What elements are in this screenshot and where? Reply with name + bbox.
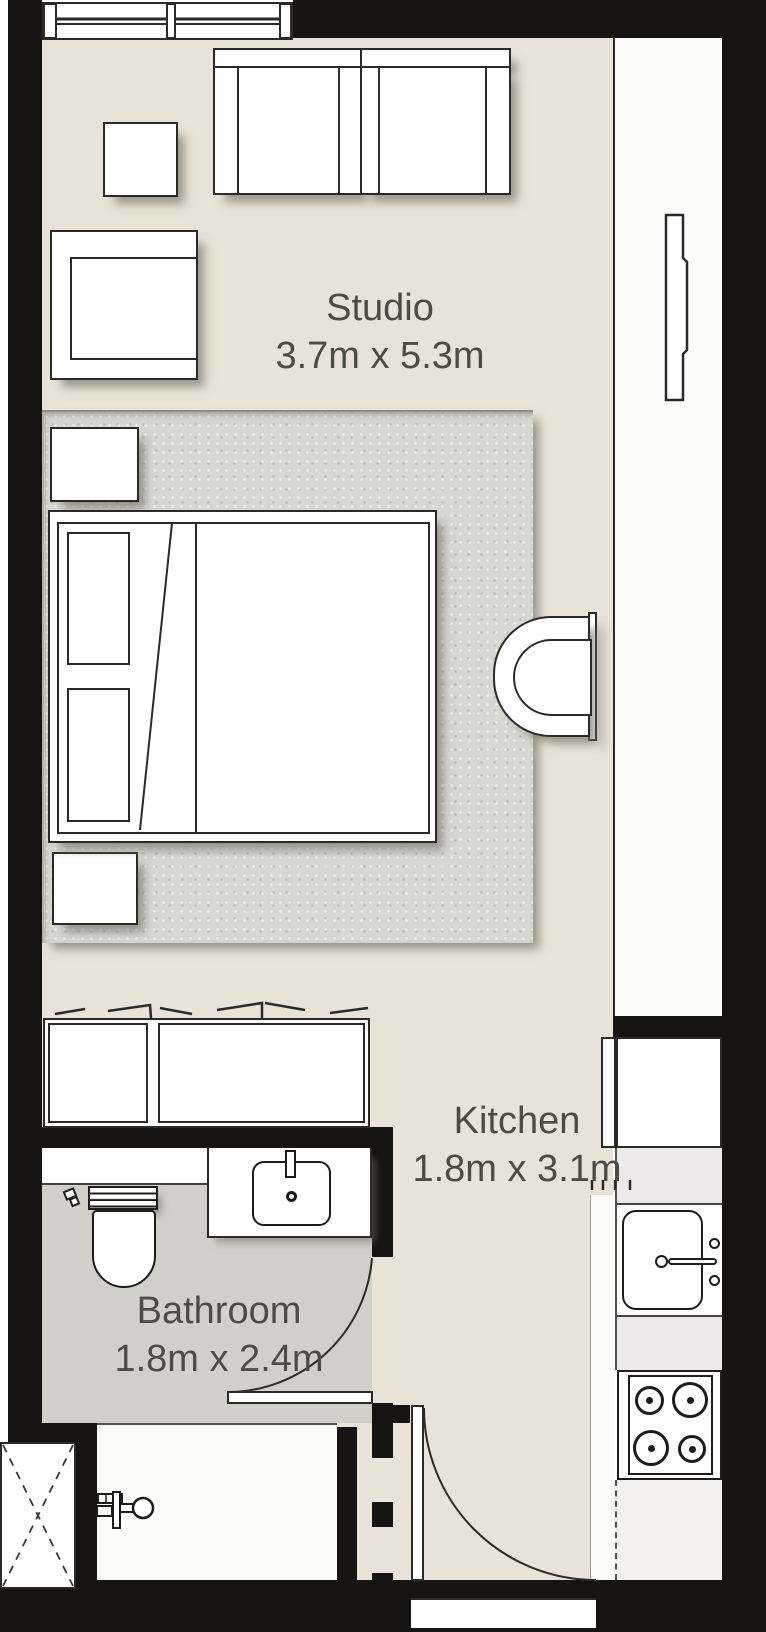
shower-room-floor bbox=[97, 1423, 337, 1590]
wall-bathroom-right-lower bbox=[372, 1403, 393, 1458]
burner-top-right bbox=[672, 1382, 708, 1418]
burner-bottom-left bbox=[633, 1430, 669, 1466]
wall-bathroom-right-upper bbox=[372, 1148, 393, 1257]
wall-bathroom-bottom-left bbox=[8, 1423, 97, 1442]
wall-top bbox=[293, 0, 722, 38]
wall-right bbox=[722, 0, 766, 1632]
burner-bottom-right bbox=[678, 1435, 706, 1463]
kitchen-floor-lower bbox=[590, 1195, 615, 1580]
kitchen-counter-3 bbox=[615, 1480, 722, 1580]
wall-left bbox=[8, 0, 42, 1423]
wall-closet-bathroom bbox=[42, 1127, 393, 1148]
sofa-cushion-left bbox=[237, 66, 340, 195]
wall-jamb-block-2 bbox=[372, 1573, 393, 1593]
nightstand-top bbox=[50, 427, 139, 502]
sink-drain bbox=[286, 1191, 297, 1202]
wall-jamb-block-1 bbox=[372, 1502, 393, 1527]
side-table bbox=[103, 122, 178, 197]
sofa-module-left bbox=[213, 66, 362, 195]
sofa-cushion-right bbox=[378, 66, 487, 195]
entry-threshold bbox=[411, 1598, 596, 1628]
sofa-backrest-right bbox=[360, 48, 511, 68]
studio-label: Studio 3.7m x 5.3m bbox=[275, 285, 484, 381]
fridge bbox=[616, 1037, 722, 1148]
kitchen-counter-2 bbox=[615, 1317, 722, 1370]
bathroom-label-dims: 1.8m x 2.4m bbox=[114, 1334, 323, 1384]
reading-chair-seat bbox=[513, 639, 592, 716]
pillow-bottom bbox=[67, 688, 130, 822]
kitchen-faucet-knob-cold bbox=[709, 1275, 720, 1286]
sofa-module-right bbox=[360, 66, 511, 195]
kitchen-faucet-base bbox=[655, 1255, 668, 1268]
closet-right bbox=[158, 1023, 365, 1123]
kitchen-counter-1 bbox=[615, 1148, 722, 1203]
kitchen-faucet-spout bbox=[668, 1258, 717, 1265]
armchair bbox=[50, 230, 198, 380]
wall-shower-left bbox=[75, 1442, 97, 1590]
shaft-void bbox=[0, 1442, 76, 1589]
burner-top-left bbox=[635, 1386, 664, 1415]
kitchen-corridor-floor bbox=[613, 38, 722, 1016]
window bbox=[42, 2, 293, 40]
pillow-top bbox=[67, 532, 130, 665]
studio-label-dims: 3.7m x 5.3m bbox=[275, 331, 484, 381]
kitchen-label: Kitchen 1.8m x 3.1m bbox=[412, 1098, 621, 1194]
entry-door-leaf bbox=[411, 1405, 424, 1581]
wall-door-hinge-stub bbox=[393, 1405, 410, 1423]
kitchen-label-name: Kitchen bbox=[412, 1098, 621, 1144]
armchair-seat bbox=[70, 257, 198, 360]
wall-shower-right bbox=[337, 1427, 357, 1590]
floorplan: Studio 3.7m x 5.3m Kitchen 1.8m x 3.1m B… bbox=[0, 0, 766, 1632]
closet-left bbox=[48, 1023, 148, 1123]
toilet-bowl bbox=[92, 1210, 156, 1288]
studio-label-name: Studio bbox=[275, 285, 484, 331]
wall-kitchen-stub bbox=[613, 1016, 766, 1037]
bathroom-label-name: Bathroom bbox=[114, 1288, 323, 1334]
kitchen-label-dims: 1.8m x 3.1m bbox=[412, 1144, 621, 1194]
bathroom-faucet bbox=[285, 1150, 296, 1178]
bathroom-label: Bathroom 1.8m x 2.4m bbox=[114, 1288, 323, 1384]
bathroom-door-leaf bbox=[227, 1391, 373, 1404]
nightstand-bottom bbox=[52, 852, 138, 925]
sofa-backrest-left bbox=[213, 48, 362, 68]
toilet-tank bbox=[88, 1186, 158, 1210]
kitchen-faucet-knob-hot bbox=[709, 1238, 720, 1249]
